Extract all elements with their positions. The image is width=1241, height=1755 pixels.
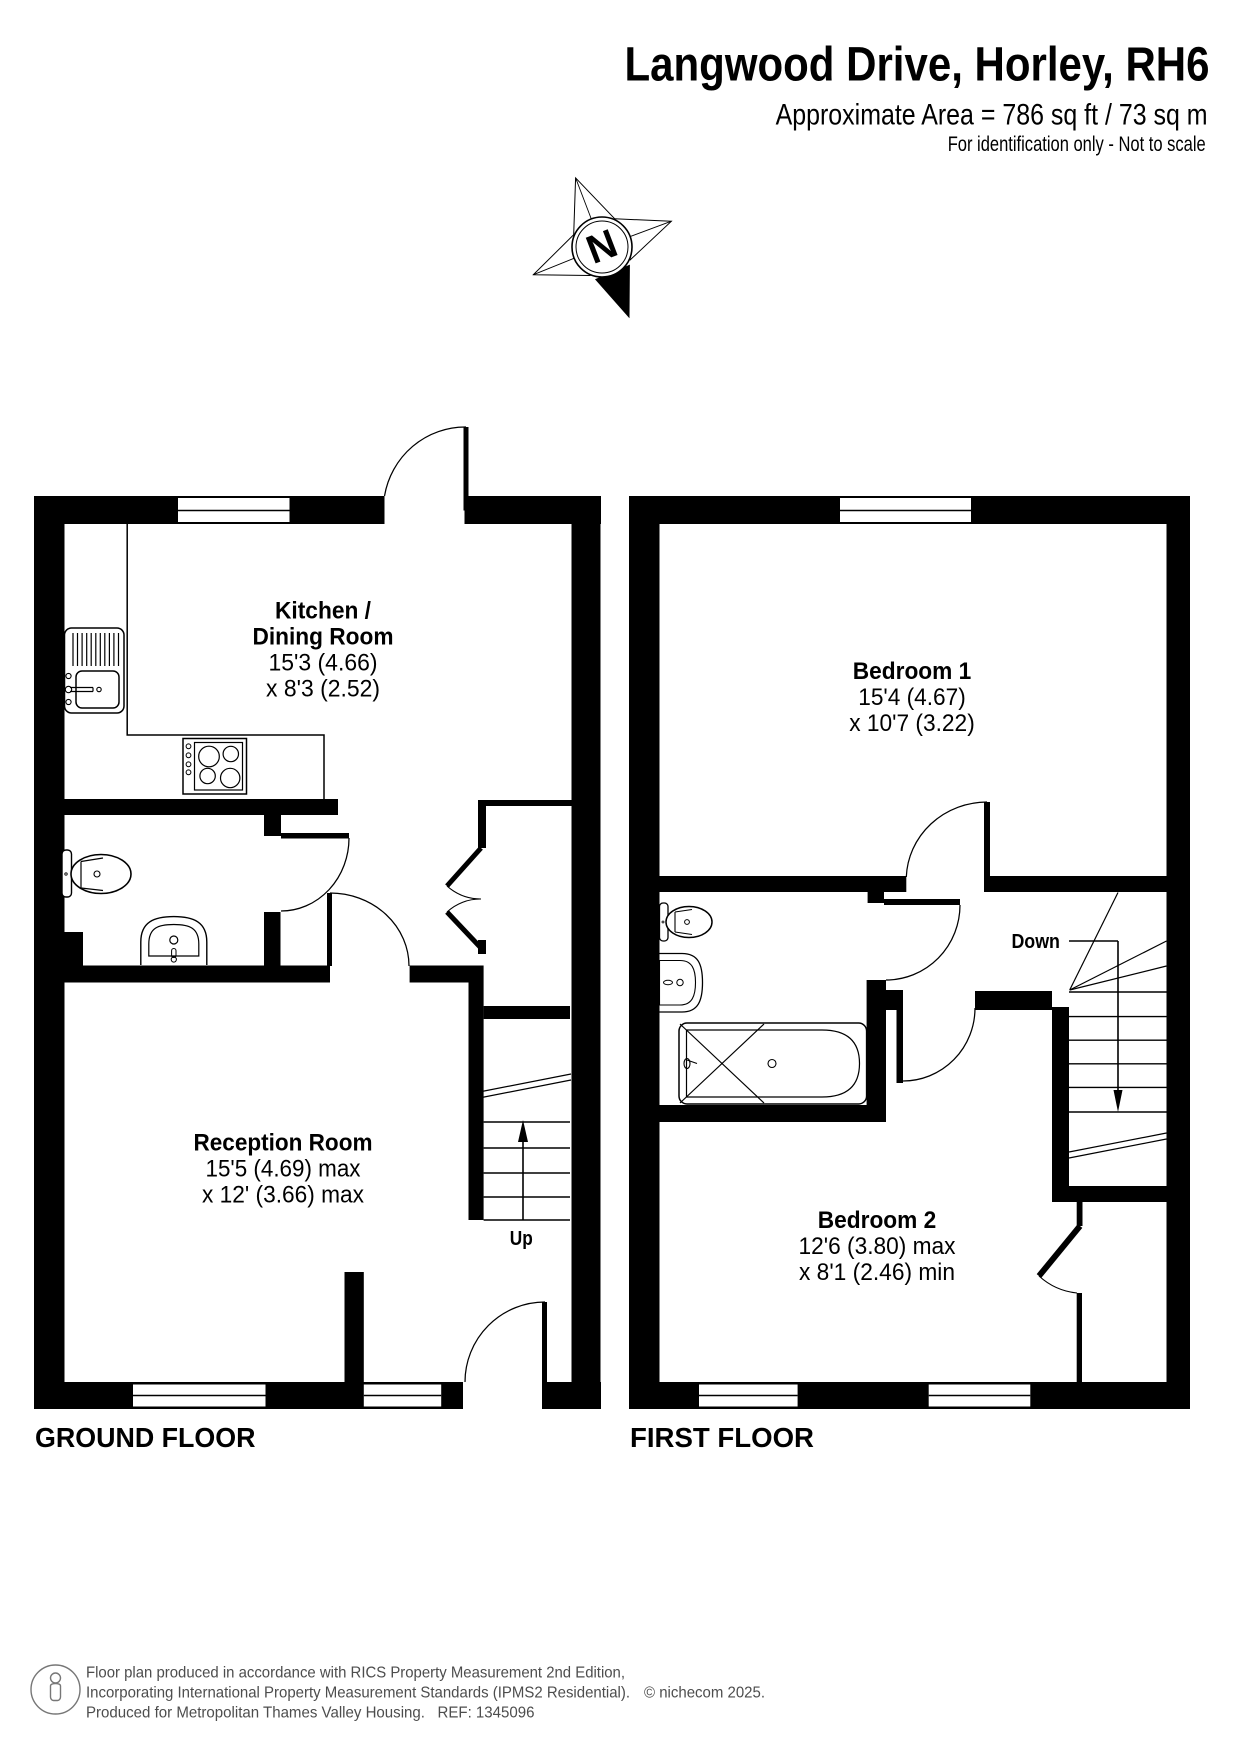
svg-text:GROUND FLOOR: GROUND FLOOR (35, 1422, 256, 1453)
svg-text:Reception Room: Reception Room (194, 1130, 373, 1157)
svg-text:x 8'1 (2.46) min: x 8'1 (2.46) min (799, 1259, 955, 1286)
svg-text:Langwood Drive, Horley, RH6: Langwood Drive, Horley, RH6 (625, 39, 1210, 92)
svg-text:x 12' (3.66) max: x 12' (3.66) max (202, 1182, 364, 1209)
svg-text:Up: Up (510, 1228, 533, 1250)
svg-text:Produced for Metropolitan Tham: Produced for Metropolitan Thames Valley … (86, 1705, 535, 1722)
svg-text:For identification only - Not: For identification only - Not to scale (948, 132, 1206, 156)
svg-text:Down: Down (1011, 931, 1060, 953)
svg-text:© nichecom 2025.: © nichecom 2025. (644, 1685, 765, 1702)
svg-text:Kitchen /: Kitchen / (275, 598, 371, 625)
svg-text:Dining Room: Dining Room (253, 624, 394, 651)
svg-text:FIRST FLOOR: FIRST FLOOR (630, 1422, 814, 1453)
svg-text:15'3 (4.66): 15'3 (4.66) (269, 650, 378, 677)
svg-text:12'6 (3.80) max: 12'6 (3.80) max (799, 1233, 956, 1260)
svg-text:Floor plan produced in accorda: Floor plan produced in accordance with R… (86, 1665, 625, 1682)
svg-text:15'4 (4.67): 15'4 (4.67) (858, 684, 966, 711)
svg-text:Bedroom 1: Bedroom 1 (853, 658, 972, 685)
svg-text:Bedroom 2: Bedroom 2 (818, 1207, 937, 1234)
svg-text:Approximate Area = 786 sq ft /: Approximate Area = 786 sq ft / 73 sq m (776, 98, 1208, 131)
svg-text:Incorporating International Pr: Incorporating International Property Mea… (86, 1685, 630, 1702)
svg-text:15'5 (4.69) max: 15'5 (4.69) max (206, 1156, 361, 1183)
svg-text:x 10'7 (3.22): x 10'7 (3.22) (849, 710, 975, 737)
svg-text:x 8'3 (2.52): x 8'3 (2.52) (266, 676, 380, 703)
